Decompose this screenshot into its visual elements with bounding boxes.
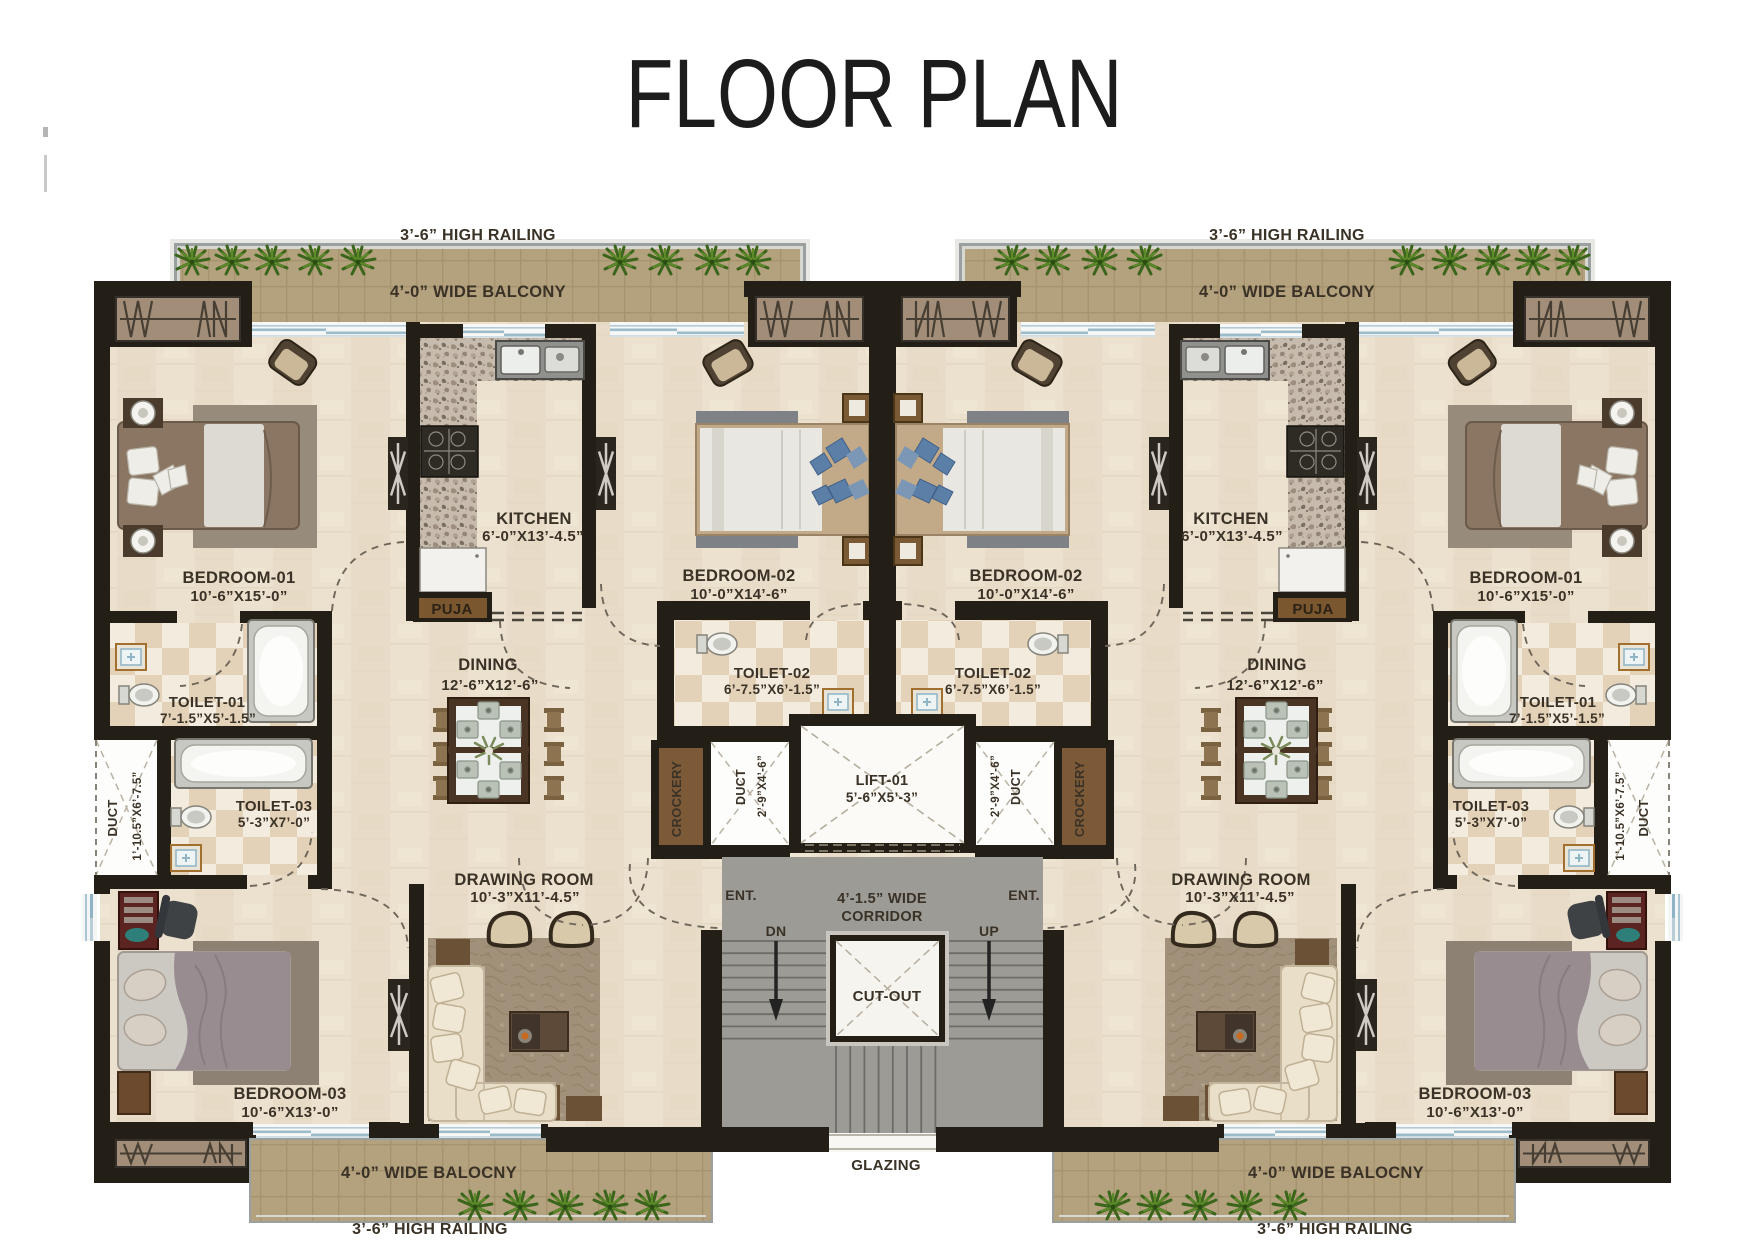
svg-text:1’-10.5”X6’-7.5”: 1’-10.5”X6’-7.5” <box>132 771 144 860</box>
svg-text:3’-6” HIGH RAILING: 3’-6” HIGH RAILING <box>1209 227 1365 244</box>
svg-text:4’-0” WIDE BALCONY: 4’-0” WIDE BALCONY <box>1199 283 1375 301</box>
svg-text:4’-0” WIDE BALOCNY: 4’-0” WIDE BALOCNY <box>341 1164 517 1182</box>
svg-text:BEDROOM-01: BEDROOM-01 <box>1469 569 1582 587</box>
svg-text:5’-3”X7’-0”: 5’-3”X7’-0” <box>238 815 310 830</box>
svg-text:CORRIDOR: CORRIDOR <box>841 909 923 925</box>
svg-text:4’-0” WIDE BALCONY: 4’-0” WIDE BALCONY <box>390 283 566 301</box>
svg-text:7’-1.5”X5’-1.5”: 7’-1.5”X5’-1.5” <box>1509 711 1605 726</box>
svg-text:BEDROOM-02: BEDROOM-02 <box>969 567 1082 585</box>
svg-text:ENT.: ENT. <box>1008 887 1040 903</box>
svg-text:TOILET-03: TOILET-03 <box>236 798 313 815</box>
svg-text:10’-3”X11’-4.5”: 10’-3”X11’-4.5” <box>1185 889 1295 906</box>
svg-text:6’-7.5”X6’-1.5”: 6’-7.5”X6’-1.5” <box>724 682 820 697</box>
svg-text:GLAZING: GLAZING <box>851 1157 921 1174</box>
svg-text:DRAWING ROOM: DRAWING ROOM <box>1171 871 1310 889</box>
svg-text:10’-0”X14’-6”: 10’-0”X14’-6” <box>977 586 1074 603</box>
svg-text:3’-6” HIGH RAILING: 3’-6” HIGH RAILING <box>352 1221 508 1238</box>
svg-text:DUCT: DUCT <box>1009 769 1023 805</box>
svg-text:10’-6”X15’-0”: 10’-6”X15’-0” <box>190 588 287 605</box>
svg-text:12’-6”X12’-6”: 12’-6”X12’-6” <box>1226 677 1323 694</box>
svg-text:TOILET-03: TOILET-03 <box>1453 798 1530 815</box>
svg-text:10’-6”X15’-0”: 10’-6”X15’-0” <box>1477 588 1574 605</box>
svg-text:6’-0”X13’-4.5”: 6’-0”X13’-4.5” <box>482 528 584 545</box>
svg-text:DINING: DINING <box>458 656 518 674</box>
svg-text:DN: DN <box>766 923 787 939</box>
svg-text:DUCT: DUCT <box>1636 799 1651 836</box>
svg-text:10’-3”X11’-4.5”: 10’-3”X11’-4.5” <box>470 889 580 906</box>
svg-text:KITCHEN: KITCHEN <box>1193 510 1268 528</box>
svg-text:UP: UP <box>979 923 999 939</box>
svg-text:BEDROOM-02: BEDROOM-02 <box>682 567 795 585</box>
svg-text:DINING: DINING <box>1247 656 1307 674</box>
svg-text:LIFT-01: LIFT-01 <box>856 773 909 789</box>
svg-text:12’-6”X12’-6”: 12’-6”X12’-6” <box>441 677 538 694</box>
svg-text:DRAWING ROOM: DRAWING ROOM <box>454 871 593 889</box>
svg-text:10’-6”X13’-0”: 10’-6”X13’-0” <box>1426 1104 1523 1121</box>
svg-text:2’-9”X4’-6”: 2’-9”X4’-6” <box>757 755 769 817</box>
svg-text:CROCKERY: CROCKERY <box>669 761 684 837</box>
svg-text:5’-3”X7’-0”: 5’-3”X7’-0” <box>1455 815 1527 830</box>
svg-text:TOILET-02: TOILET-02 <box>734 665 811 682</box>
svg-text:10’-6”X13’-0”: 10’-6”X13’-0” <box>241 1104 338 1121</box>
svg-text:FLOOR PLAN: FLOOR PLAN <box>626 39 1123 148</box>
svg-text:2’-9”X4’-6”: 2’-9”X4’-6” <box>990 755 1002 817</box>
svg-text:6’-0”X13’-4.5”: 6’-0”X13’-4.5” <box>1181 528 1283 545</box>
svg-text:CROCKERY: CROCKERY <box>1072 761 1087 837</box>
svg-text:PUJA: PUJA <box>1292 601 1333 618</box>
svg-text:BEDROOM-03: BEDROOM-03 <box>1418 1085 1531 1103</box>
svg-text:CUT-OUT: CUT-OUT <box>853 988 922 1005</box>
svg-text:BEDROOM-03: BEDROOM-03 <box>233 1085 346 1103</box>
svg-text:TOILET-01: TOILET-01 <box>169 694 246 711</box>
svg-text:PUJA: PUJA <box>431 601 472 618</box>
svg-text:7’-1.5”X5’-1.5”: 7’-1.5”X5’-1.5” <box>160 711 256 726</box>
svg-text:KITCHEN: KITCHEN <box>496 510 571 528</box>
svg-text:3’-6” HIGH RAILING: 3’-6” HIGH RAILING <box>1257 1221 1413 1238</box>
svg-text:DUCT: DUCT <box>105 799 120 836</box>
svg-text:ENT.: ENT. <box>725 887 757 903</box>
svg-text:5’-6”X5’-3”: 5’-6”X5’-3” <box>846 790 918 805</box>
svg-text:1’-10.5”X6’-7.5”: 1’-10.5”X6’-7.5” <box>1615 771 1627 860</box>
svg-text:BEDROOM-01: BEDROOM-01 <box>182 569 295 587</box>
svg-text:3’-6” HIGH RAILING: 3’-6” HIGH RAILING <box>400 227 556 244</box>
svg-text:DUCT: DUCT <box>734 769 748 805</box>
svg-text:TOILET-02: TOILET-02 <box>955 665 1032 682</box>
svg-text:TOILET-01: TOILET-01 <box>1520 694 1597 711</box>
svg-text:10’-0”X14’-6”: 10’-0”X14’-6” <box>690 586 787 603</box>
svg-text:6’-7.5”X6’-1.5”: 6’-7.5”X6’-1.5” <box>945 682 1041 697</box>
svg-text:4’-1.5” WIDE: 4’-1.5” WIDE <box>837 891 927 907</box>
svg-text:4’-0” WIDE BALOCNY: 4’-0” WIDE BALOCNY <box>1248 1164 1424 1182</box>
